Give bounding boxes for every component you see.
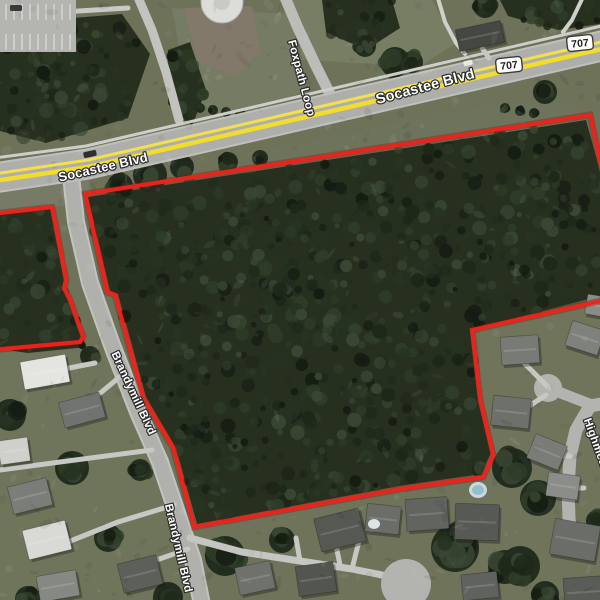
house xyxy=(295,561,339,599)
map-canvas: Socastee BlvdSocastee BlvdFoxpath LoopBr… xyxy=(0,0,600,600)
tree-clump xyxy=(533,80,557,104)
tree-clump xyxy=(269,527,295,553)
route-shield-route-707-west: 707 xyxy=(495,56,522,74)
satellite-map[interactable]: Socastee BlvdSocastee BlvdFoxpath LoopBr… xyxy=(0,0,600,600)
tree-clump xyxy=(208,105,218,115)
house xyxy=(549,518,600,565)
house xyxy=(545,472,582,503)
house xyxy=(500,335,542,369)
house xyxy=(454,503,501,544)
pool xyxy=(368,519,380,529)
house xyxy=(490,395,533,432)
tree-clump xyxy=(55,451,89,485)
tree-clump xyxy=(354,35,376,57)
route-shield-route-707-east: 707 xyxy=(566,34,593,52)
house xyxy=(461,571,502,600)
car xyxy=(10,5,22,11)
house xyxy=(0,437,33,468)
house xyxy=(563,575,600,600)
pool xyxy=(472,485,484,495)
route-shield-number: 707 xyxy=(571,37,590,51)
tree-clump xyxy=(195,103,205,113)
route-shield-number: 707 xyxy=(500,59,519,73)
